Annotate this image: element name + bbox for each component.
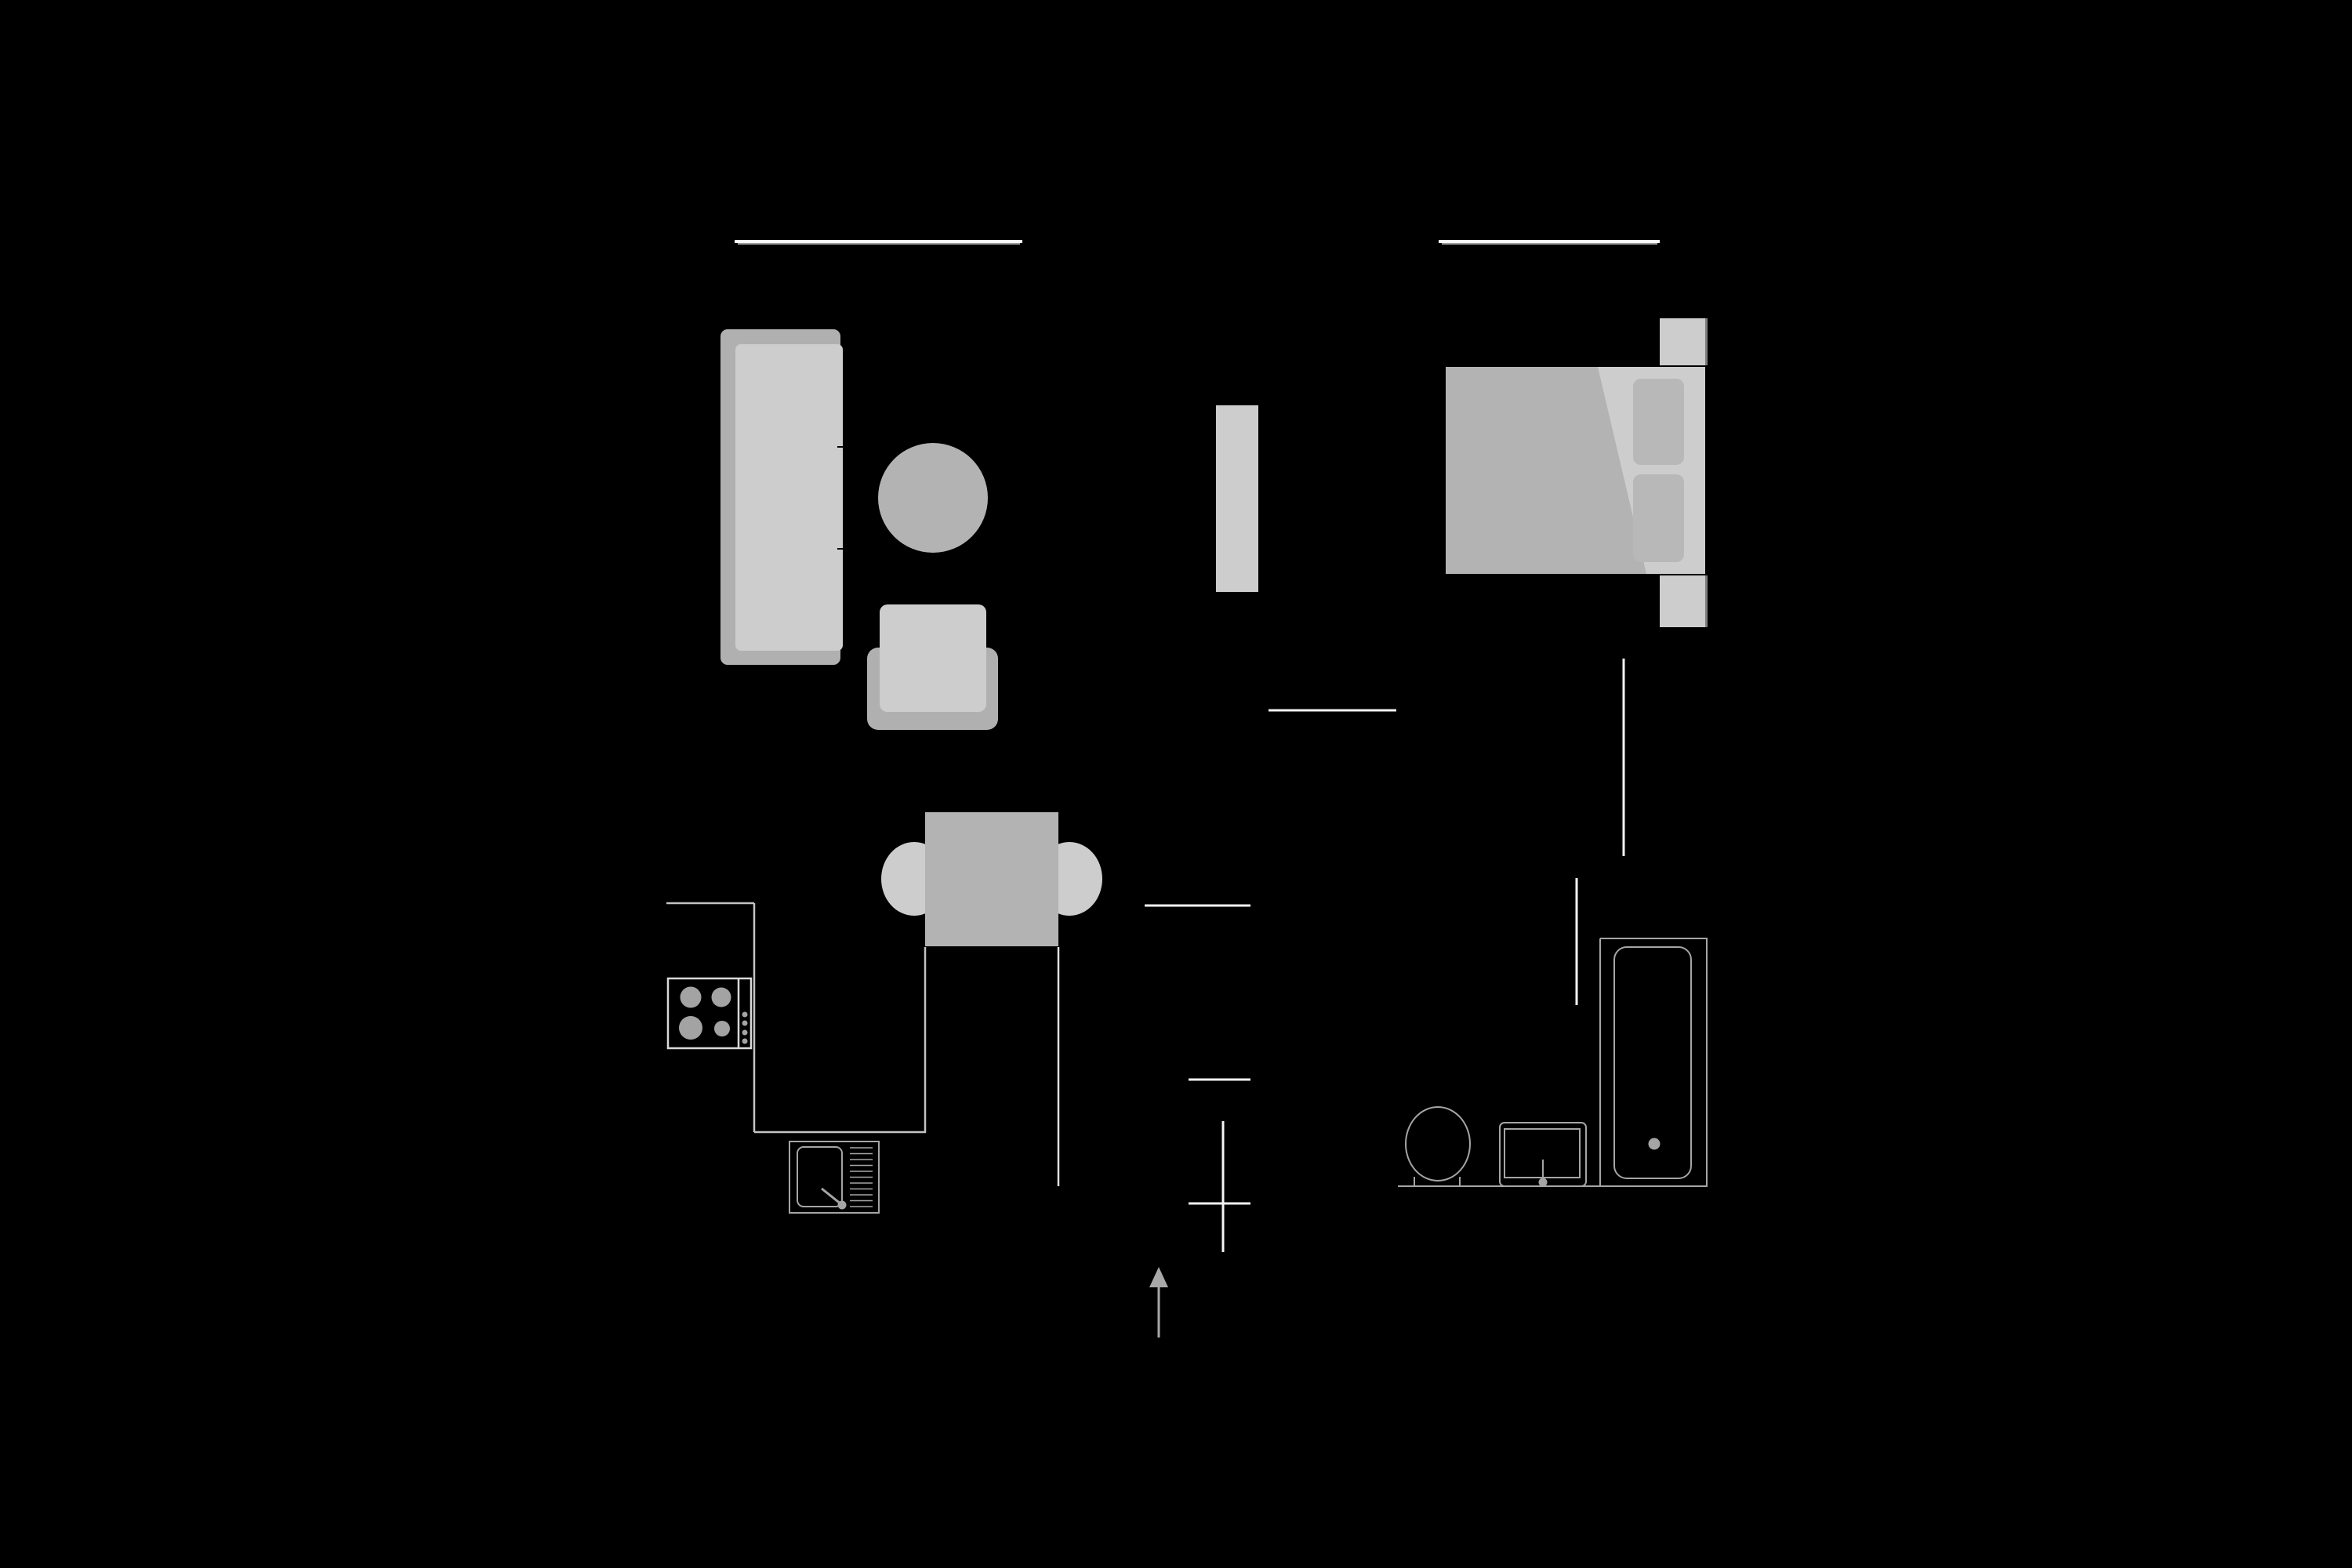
bed-nightstand-bottom bbox=[1660, 575, 1705, 627]
stove-knob-2 bbox=[742, 1021, 748, 1026]
window-right-line bbox=[1439, 240, 1660, 243]
coffee-table-round bbox=[878, 443, 988, 553]
stove-knob-4 bbox=[742, 1039, 748, 1044]
sink-basin bbox=[797, 1147, 842, 1207]
bed-nightstand-top bbox=[1660, 318, 1705, 365]
toilet-bowl bbox=[1406, 1107, 1470, 1181]
sink-drainboard-lines bbox=[850, 1148, 873, 1207]
vanity-faucet-dot bbox=[1539, 1178, 1548, 1187]
floor-plan-drawing bbox=[0, 0, 2352, 1568]
stove-knob-3 bbox=[742, 1030, 748, 1036]
entrance-arrow-head bbox=[1149, 1267, 1168, 1287]
bed-nightstand-top-edge bbox=[1705, 318, 1708, 365]
door-leaf bbox=[1216, 405, 1258, 592]
stove-burner-top-right bbox=[712, 988, 731, 1007]
bed-pillow-top bbox=[1633, 379, 1684, 465]
stove-burner-top-left bbox=[681, 987, 702, 1008]
sofa-cushion-gap-top bbox=[837, 446, 843, 448]
tub-drain bbox=[1649, 1138, 1661, 1150]
sink-faucet-dot bbox=[838, 1201, 847, 1210]
bed-pillow-bottom bbox=[1633, 474, 1684, 562]
dining-table bbox=[925, 812, 1058, 946]
sofa-cushion-gap-bottom bbox=[837, 548, 843, 550]
stove-burner-bottom-left bbox=[679, 1016, 702, 1040]
window-left-line bbox=[735, 240, 1022, 243]
sink-faucet-arm bbox=[822, 1189, 841, 1204]
bed-nightstand-bottom-edge bbox=[1705, 575, 1708, 627]
window-right-shadow bbox=[1442, 243, 1657, 245]
stove-knob-1 bbox=[742, 1012, 748, 1018]
armchair-seat bbox=[880, 604, 986, 712]
stove-burner-bottom-right bbox=[714, 1021, 730, 1036]
floor-plan-canvas bbox=[0, 0, 2352, 1568]
window-left-shadow bbox=[738, 243, 1020, 245]
sofa-seat bbox=[735, 344, 843, 651]
